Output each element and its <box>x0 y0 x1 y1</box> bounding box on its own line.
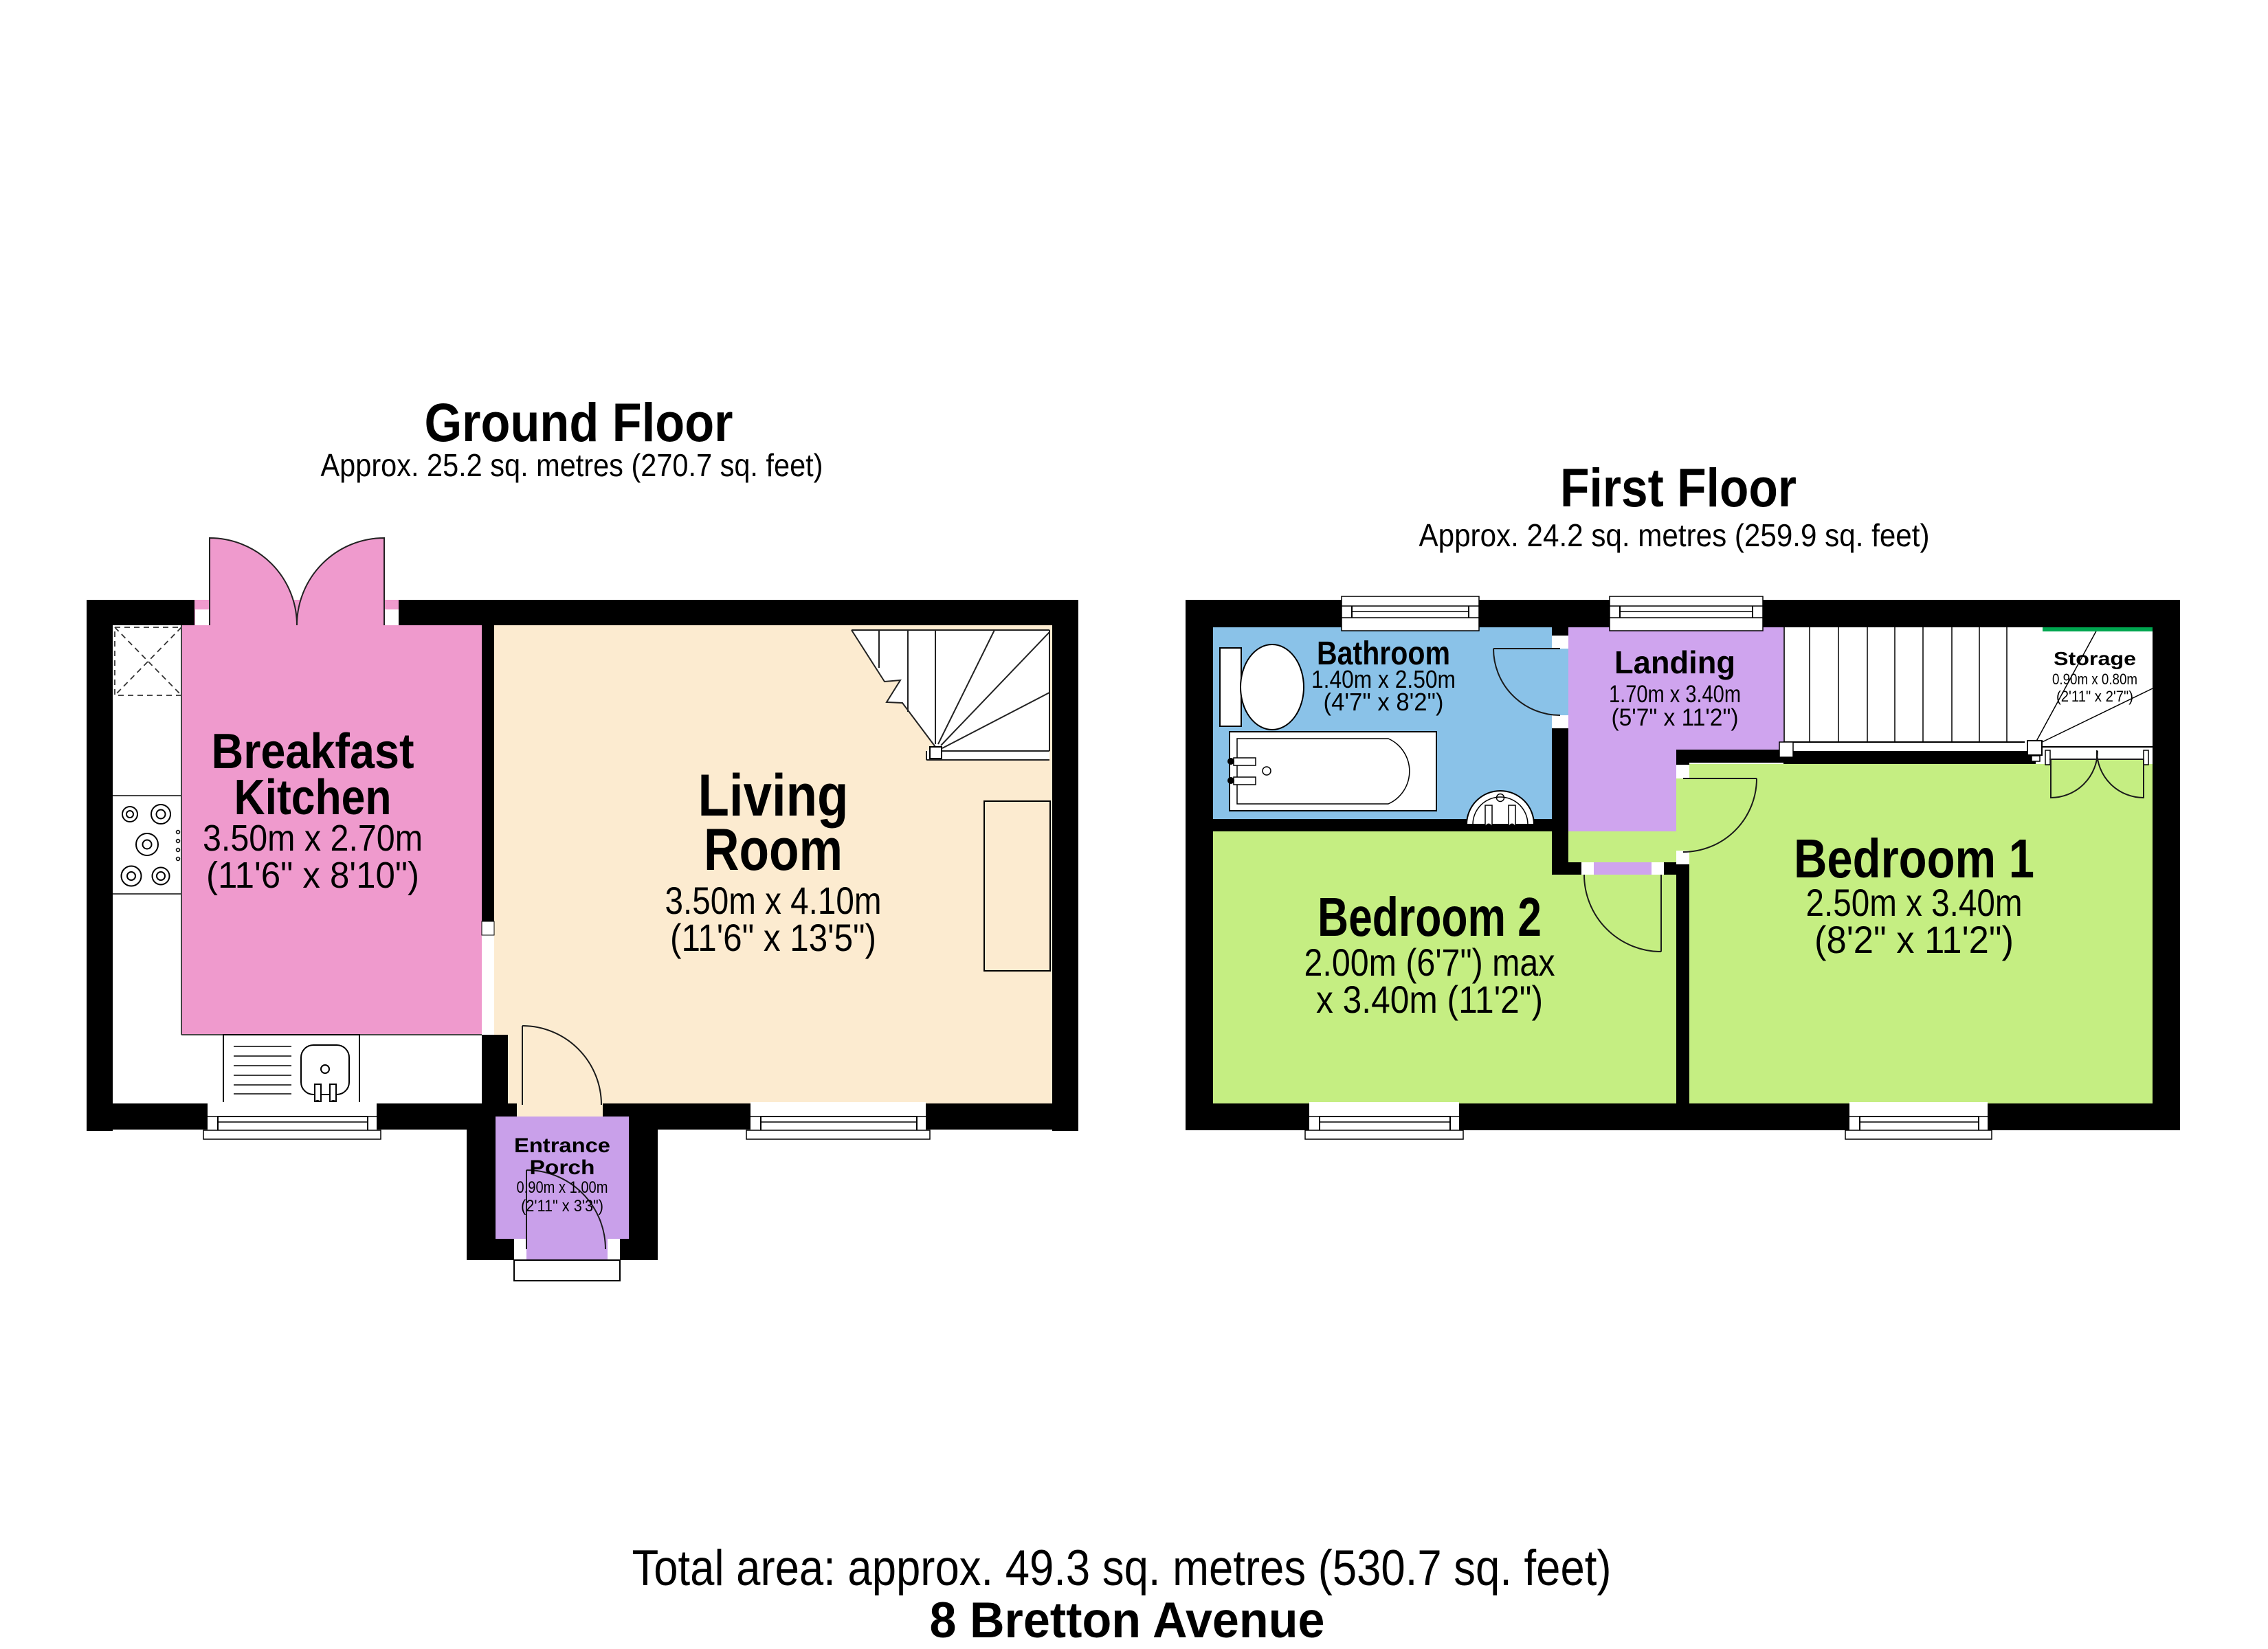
svg-text:(4'7" x 8'2"): (4'7" x 8'2") <box>1324 688 1444 716</box>
svg-text:8 Bretton Avenue: 8 Bretton Avenue <box>930 1593 1325 1648</box>
svg-text:x 3.40m (11'2"): x 3.40m (11'2") <box>1316 978 1543 1021</box>
svg-text:(11'6" x 13'5"): (11'6" x 13'5") <box>670 916 876 959</box>
svg-text:Total area: approx. 49.3 sq. m: Total area: approx. 49.3 sq. metres (530… <box>632 1540 1612 1596</box>
svg-text:0.90m x 0.80m: 0.90m x 0.80m <box>2052 671 2137 688</box>
svg-text:Kitchen: Kitchen <box>234 770 392 825</box>
svg-text:Room: Room <box>704 817 843 883</box>
svg-text:Approx. 25.2 sq. metres (270.7: Approx. 25.2 sq. metres (270.7 sq. feet) <box>321 447 823 483</box>
svg-text:Porch: Porch <box>530 1156 595 1179</box>
svg-text:First Floor: First Floor <box>1560 457 1797 518</box>
svg-text:Approx. 24.2 sq. metres (259.9: Approx. 24.2 sq. metres (259.9 sq. feet) <box>1419 517 1930 553</box>
svg-text:Storage: Storage <box>2054 648 2136 669</box>
svg-text:0.90m x 1.00m: 0.90m x 1.00m <box>517 1178 608 1197</box>
svg-text:(2'11" x 2'7"): (2'11" x 2'7") <box>2056 688 2133 705</box>
svg-text:Ground Floor: Ground Floor <box>425 392 733 453</box>
svg-text:Bedroom 2: Bedroom 2 <box>1318 886 1542 947</box>
svg-text:Landing: Landing <box>1614 644 1735 680</box>
svg-text:Bedroom 1: Bedroom 1 <box>1794 828 2034 889</box>
svg-text:(2'11" x 3'3"): (2'11" x 3'3") <box>521 1197 603 1215</box>
svg-text:(8'2" x 11'2"): (8'2" x 11'2") <box>1814 918 2014 961</box>
svg-text:(5'7" x 11'2"): (5'7" x 11'2") <box>1612 704 1739 731</box>
svg-text:Entrance: Entrance <box>514 1134 610 1157</box>
svg-text:3.50m x 2.70m: 3.50m x 2.70m <box>203 818 423 859</box>
svg-text:(11'6" x 8'10"): (11'6" x 8'10") <box>206 855 419 896</box>
